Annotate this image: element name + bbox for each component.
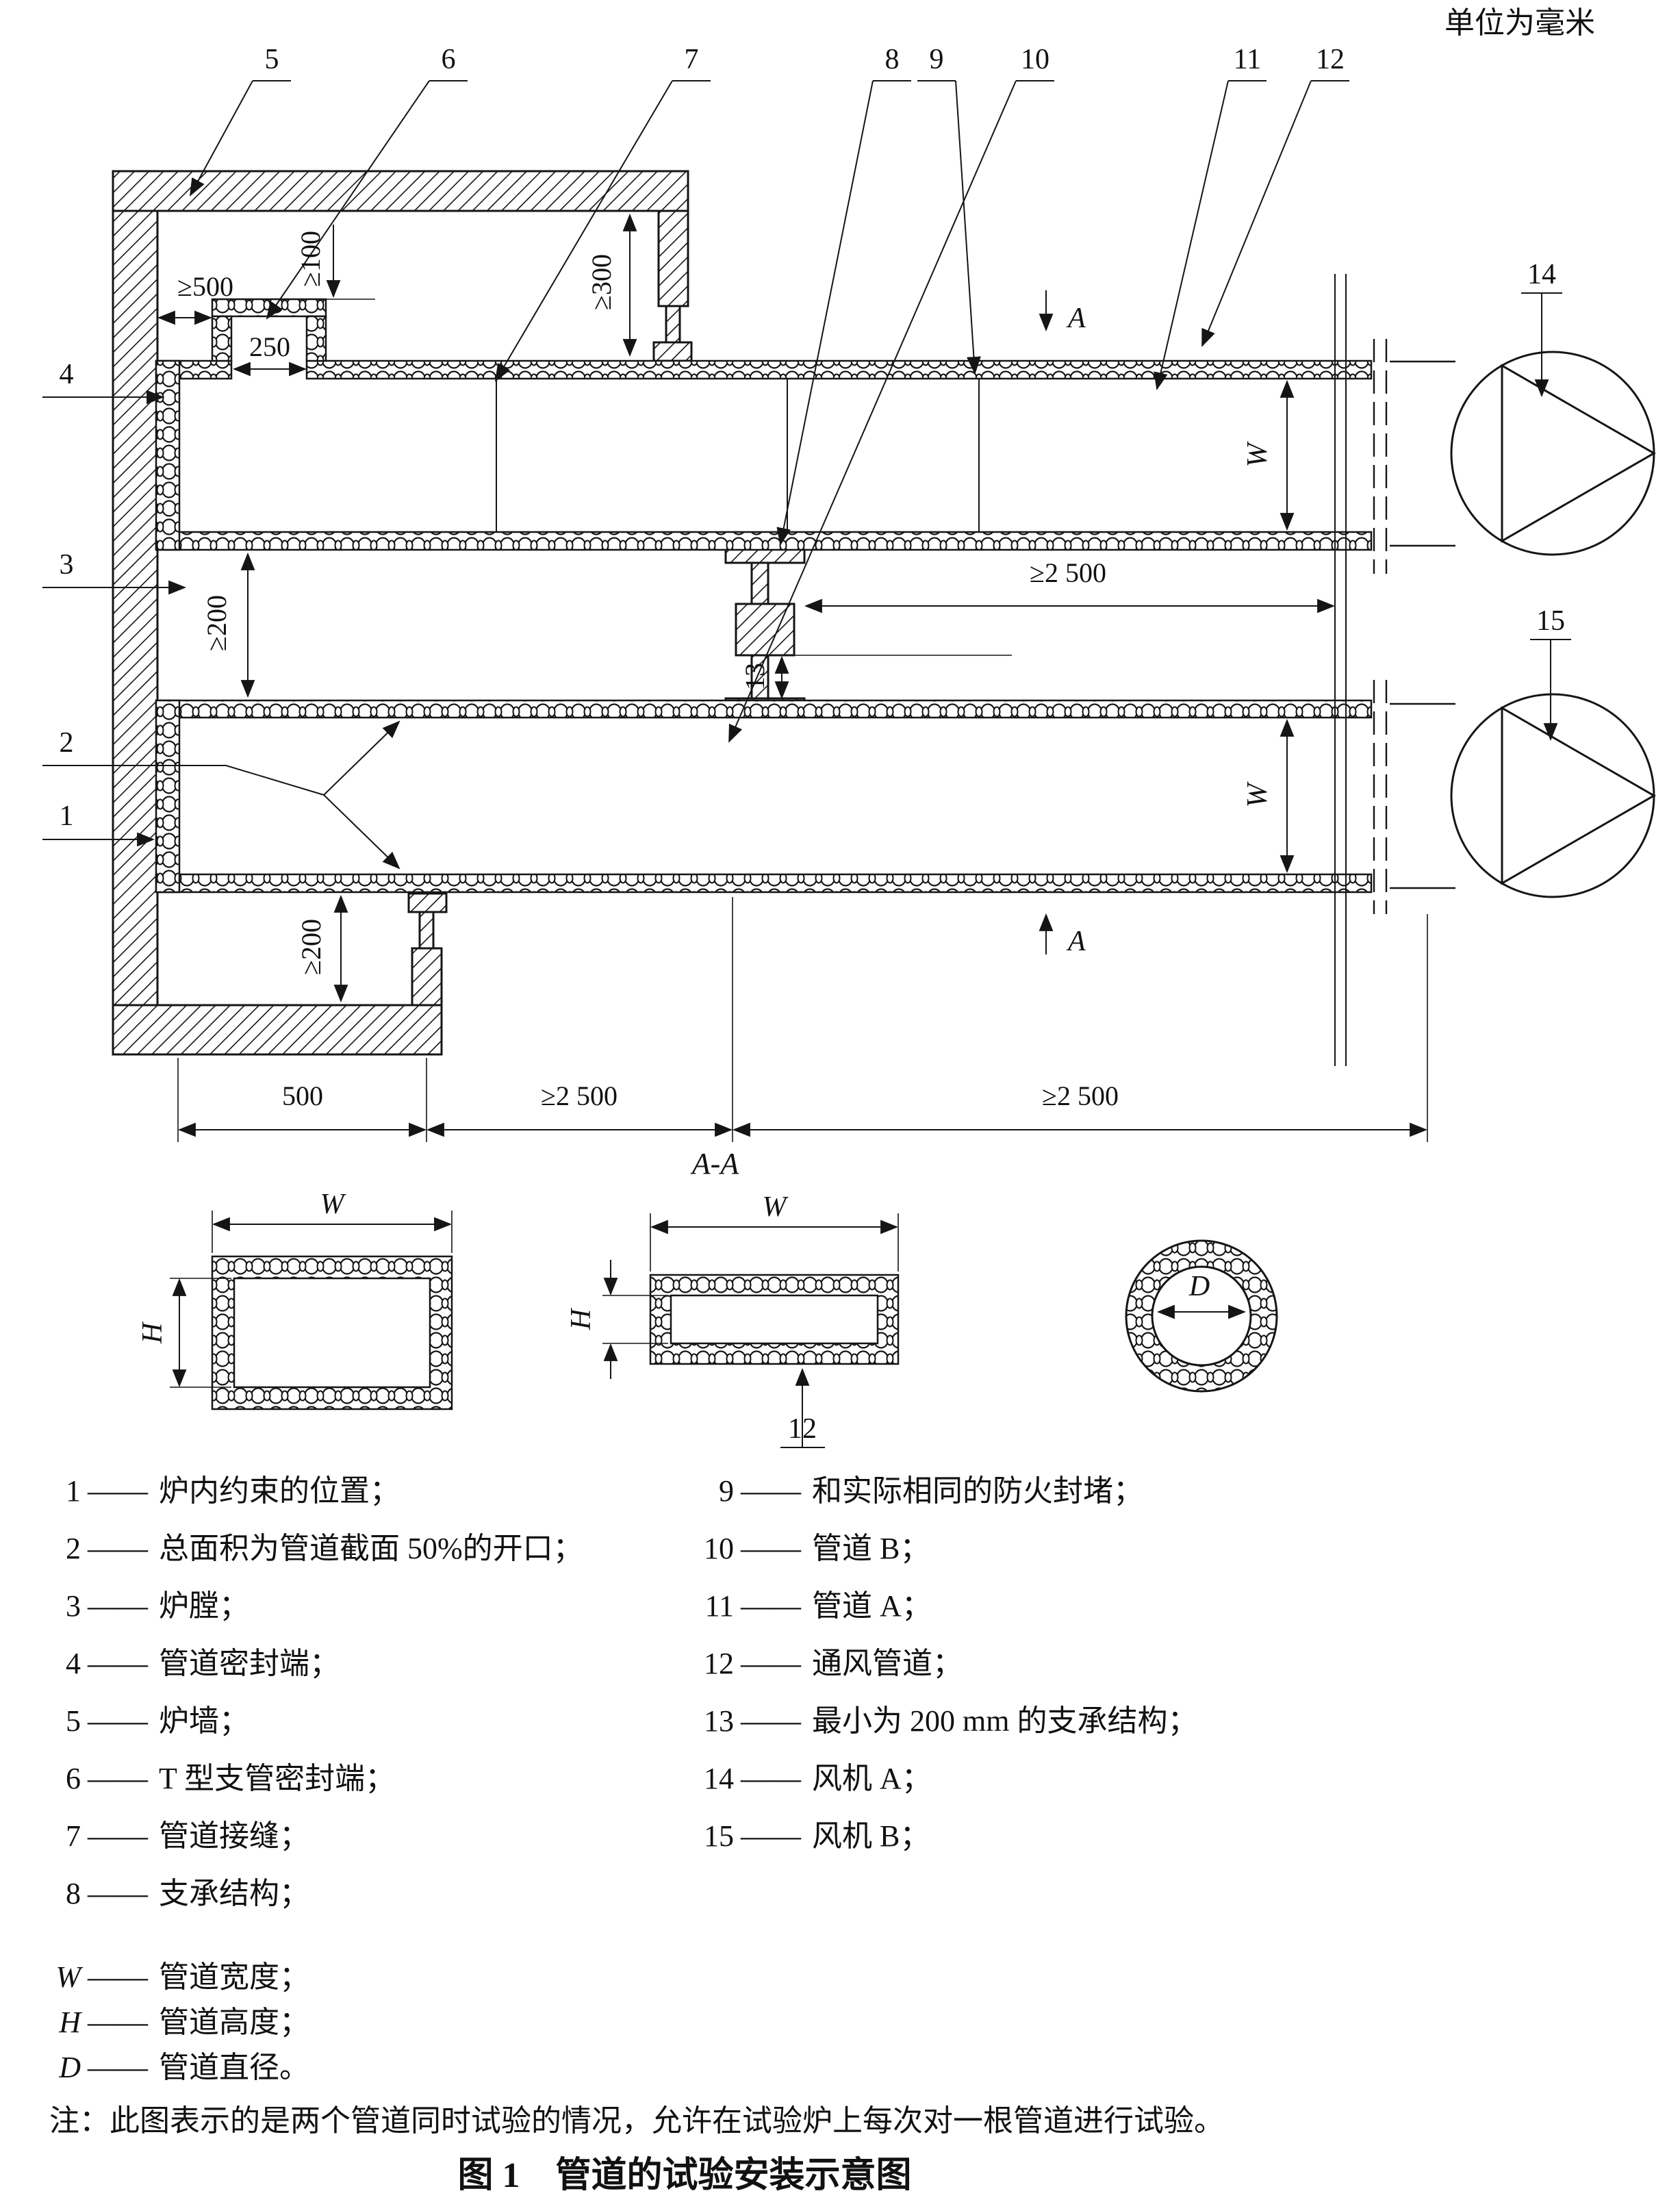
callout-2: 2 <box>42 727 324 795</box>
callout-7-label: 7 <box>685 44 699 75</box>
dim-ge100: ≥100 <box>295 225 375 299</box>
callout-15: 15 <box>1530 605 1571 739</box>
legend-13-dash: —— <box>740 1704 802 1738</box>
support-stem-top <box>752 563 768 604</box>
legend-12-num: 12 <box>704 1647 734 1680</box>
fan-a-triangle <box>1502 366 1654 541</box>
callout-8: 8 <box>780 44 911 544</box>
duct-a-top-insulation <box>307 361 1371 379</box>
callout-9-label: 9 <box>930 44 944 75</box>
partition-lines <box>1335 274 1346 1066</box>
legend-5-dash: —— <box>87 1704 149 1738</box>
opening-symbol <box>324 722 399 868</box>
legend-14-num: 14 <box>704 1762 734 1795</box>
legend-6-num: 6 <box>66 1762 81 1795</box>
dim-ge2500-mid-label: ≥2 500 <box>1030 557 1106 588</box>
legend-4-num: 4 <box>66 1647 81 1680</box>
callout-11: 11 <box>1157 44 1267 389</box>
callout-10-leader <box>729 81 1016 742</box>
callout-8-leader <box>780 81 873 544</box>
legend-11-dash: —— <box>740 1589 802 1623</box>
section2-h-label: H <box>565 1307 597 1330</box>
dim-ge300: ≥300 <box>586 215 630 355</box>
dim-ge200-mid-label: ≥200 <box>201 595 232 651</box>
legend-6-label: T 型支管密封端； <box>159 1762 395 1795</box>
dim-ge200-mid: ≥200 <box>201 554 248 696</box>
section-a-bottom-label: A <box>1066 926 1086 957</box>
legend-12-dash: —— <box>740 1647 802 1680</box>
legend-14-dash: —— <box>740 1762 802 1795</box>
section-aa-label: A-A <box>690 1147 740 1180</box>
legend-1-label: 炉内约束的位置； <box>159 1474 400 1508</box>
callout-14: 14 <box>1521 259 1562 396</box>
duct-a-sealed-end <box>156 361 179 550</box>
callout-12: 12 <box>1202 44 1349 346</box>
legend-9-label: 和实际相同的防火封堵； <box>812 1474 1143 1508</box>
legend-13-num: 13 <box>704 1704 734 1738</box>
section-marker-top: A <box>1046 290 1086 334</box>
furnace-left-wall <box>113 171 157 1054</box>
legend-w-sym: W <box>55 1960 83 1994</box>
legend-11-label: 管道 A； <box>812 1589 932 1623</box>
dim-ge500-label: ≥500 <box>177 271 233 302</box>
legend-15-num: 15 <box>704 1819 734 1853</box>
dim-ge2500-mid: ≥2 500 <box>806 557 1334 606</box>
fan-b-circle <box>1451 694 1654 897</box>
legend-13-label: 最小为 200 mm 的支承结构； <box>812 1704 1197 1738</box>
legend-8-label: 支承结构； <box>159 1877 309 1910</box>
callout-6-label: 6 <box>442 44 456 75</box>
legend-1-dash: —— <box>87 1474 149 1508</box>
legend-9-num: 9 <box>719 1474 734 1508</box>
legend-8-dash: —— <box>87 1877 149 1910</box>
top-support-pad <box>654 342 691 361</box>
legend-8-num: 8 <box>66 1877 81 1910</box>
callout-3-label: 3 <box>60 549 74 581</box>
legend-4-label: 管道密封端； <box>159 1647 340 1680</box>
duct-b-top-insulation <box>156 700 1371 718</box>
callout-4-label: 4 <box>60 359 74 390</box>
legend-3-dash: —— <box>87 1589 149 1623</box>
t-branch-left-wall <box>212 316 231 361</box>
t-branch-right-wall <box>307 316 326 361</box>
callout-7-leader <box>496 81 672 381</box>
section2-w-label: W <box>763 1191 789 1223</box>
furnace-top-wall-leg <box>659 211 688 306</box>
legend-3-label: 炉膛； <box>159 1589 249 1623</box>
legend-d-sym: D <box>58 2051 81 2084</box>
legend-d-label: 管道直径。 <box>159 2051 309 2084</box>
callout-9: 9 <box>917 44 975 373</box>
duct-a-bottom-insulation <box>156 532 1371 550</box>
legend-10-num: 10 <box>704 1532 734 1565</box>
legend-d-dash: —— <box>87 2051 149 2084</box>
fan-a <box>1451 352 1654 555</box>
section1-h-label: H <box>137 1321 168 1344</box>
unit-label: 单位为毫米 <box>1444 6 1595 40</box>
callout-5-label: 5 <box>265 44 279 75</box>
cross-section-rect: W H <box>137 1189 452 1409</box>
callout-15-label: 15 <box>1536 605 1565 637</box>
dim-ge2500-b-label: ≥2 500 <box>1042 1080 1119 1111</box>
legend-4-dash: —— <box>87 1647 149 1680</box>
legend-10-dash: —— <box>740 1532 802 1565</box>
dim-ge200-bottom-label: ≥200 <box>296 919 327 975</box>
callout-1-label: 1 <box>60 800 74 832</box>
legend-h-label: 管道高度； <box>159 2005 309 2039</box>
section-a-top-label: A <box>1066 303 1086 334</box>
legend-9-dash: —— <box>740 1474 802 1508</box>
section-marker-bottom: A <box>1046 915 1086 957</box>
legend-5-label: 炉墙； <box>159 1704 249 1738</box>
callout-12-label: 12 <box>1316 44 1345 75</box>
callout-14-label: 14 <box>1527 259 1556 290</box>
dim-250-label: 250 <box>249 331 290 362</box>
dim-w-b-label: W <box>1242 781 1273 808</box>
callout-12-section: 12 <box>780 1369 825 1447</box>
legend-h-dash: —— <box>87 2005 149 2039</box>
dim-ge200-bottom: ≥200 <box>296 896 341 1001</box>
top-support-stem <box>666 306 680 342</box>
legend-15-label: 风机 B； <box>812 1819 930 1853</box>
cross-section-flat: W H 12 <box>565 1191 898 1447</box>
dim-13-label: 13 <box>739 663 770 690</box>
legend-6-dash: —— <box>87 1762 149 1795</box>
technical-drawing: 单位为毫米 <box>0 0 1680 2202</box>
legend-2-num: 2 <box>66 1532 81 1565</box>
dim-ge100-label: ≥100 <box>295 231 326 287</box>
callout-11-label: 11 <box>1234 44 1261 75</box>
section1-w-label: W <box>320 1189 347 1220</box>
dim-w-duct-a: W <box>1242 381 1287 529</box>
legend-2-dash: —— <box>87 1532 149 1565</box>
legend-h-sym: H <box>58 2005 82 2039</box>
bottom-support-stem <box>420 912 433 948</box>
legend-5-num: 5 <box>66 1704 81 1738</box>
legend: 1 —— 炉内约束的位置； 2 —— 总面积为管道截面 50%的开口； 3 ——… <box>55 1474 1197 2084</box>
fan-b <box>1451 694 1654 897</box>
fan-a-circle <box>1451 352 1654 555</box>
figure-note: 注：此图表示的是两个管道同时试验的情况，允许在试验炉上每次对一根管道进行试验。 <box>49 2104 1224 2138</box>
legend-7-num: 7 <box>66 1819 81 1853</box>
callout-2-label: 2 <box>60 727 74 759</box>
callout-8-label: 8 <box>885 44 900 75</box>
dim-w-duct-b: W <box>1242 720 1287 872</box>
legend-w-label: 管道宽度； <box>159 1960 309 1994</box>
figure-page: 单位为毫米 <box>0 0 1680 2202</box>
legend-w-dash: —— <box>87 1960 149 1994</box>
cross-section-round: D <box>1126 1241 1277 1391</box>
duct-b-bottom-insulation <box>156 874 1371 892</box>
furnace-top-wall <box>113 171 688 211</box>
callout-9-leader <box>956 81 975 373</box>
break-lines <box>1374 339 1386 914</box>
legend-7-label: 管道接缝； <box>159 1819 309 1853</box>
furnace-bottom-wall <box>113 1005 442 1054</box>
dim-13: 13 <box>739 655 1012 698</box>
legend-7-dash: —— <box>87 1819 149 1853</box>
duct-b-sealed-end <box>156 700 179 892</box>
dim-ge300-label: ≥300 <box>586 254 617 310</box>
furnace-bottom-wall-leg <box>412 948 442 1005</box>
dim-500-label: 500 <box>282 1080 323 1111</box>
legend-10-label: 管道 B； <box>812 1532 930 1565</box>
fan-b-triangle <box>1502 708 1654 883</box>
bottom-support-pad <box>409 894 446 912</box>
fan-connection-lines <box>1390 362 1455 888</box>
legend-1-num: 1 <box>66 1474 81 1508</box>
section3-d-label: D <box>1188 1271 1210 1302</box>
dim-w-a-label: W <box>1242 441 1273 468</box>
legend-12-label: 通风管道； <box>812 1647 963 1680</box>
callout-11-leader <box>1157 81 1228 389</box>
duct-b <box>156 700 1371 892</box>
legend-3-num: 3 <box>66 1589 81 1623</box>
legend-2-label: 总面积为管道截面 50%的开口； <box>159 1532 583 1565</box>
dim-250: 250 <box>234 331 305 369</box>
legend-14-label: 风机 A； <box>812 1762 932 1795</box>
callout-2-leader <box>42 765 324 795</box>
figure-caption: 图 1 管道的试验安装示意图 <box>457 2155 911 2195</box>
legend-15-dash: —— <box>740 1819 802 1853</box>
dim-ge2500-a-label: ≥2 500 <box>541 1080 618 1111</box>
callout-10-label: 10 <box>1021 44 1049 75</box>
duct-a <box>156 299 1371 550</box>
legend-11-num: 11 <box>705 1589 734 1623</box>
